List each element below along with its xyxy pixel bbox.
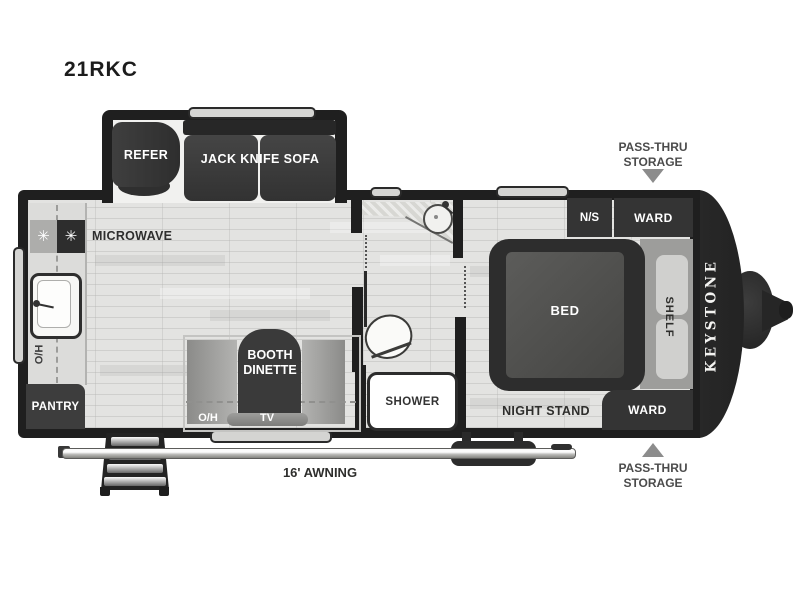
window-top-wall-small xyxy=(370,187,402,198)
brand-logo-text: KEYSTONE xyxy=(704,246,721,386)
floor-plank-shade xyxy=(95,255,225,266)
wardrobe-bottom: WARD xyxy=(602,390,693,430)
cooktop-right: ✳ xyxy=(57,220,85,253)
sofa-label: JACK KNIFE SOFA xyxy=(180,151,340,167)
pass-thru-storage-label-bottom: PASS-THRU STORAGE xyxy=(601,461,705,491)
bed-label: BED xyxy=(530,303,600,318)
entry-steps xyxy=(101,433,169,490)
entry-step xyxy=(104,477,166,486)
sofa-cushion-right xyxy=(260,135,336,201)
bedroom-door-swing xyxy=(464,266,466,308)
step-leg-right xyxy=(159,487,169,496)
window-left-wall xyxy=(13,247,25,364)
pantry-label: PANTRY xyxy=(32,401,80,413)
shelf-label: SHELF xyxy=(661,294,675,340)
dinette-label: BOOTH DINETTE xyxy=(230,346,310,380)
sofa-backrest xyxy=(183,120,336,135)
pass-thru-arrow-up-icon xyxy=(642,443,664,457)
pass-thru-storage-label-top: PASS-THRU STORAGE xyxy=(601,140,705,170)
night-stand-cabinet-label: N/S xyxy=(580,212,599,224)
floorplan-canvas: 21RKC PASS-THRU STORAGE REFER JACK KNIFE… xyxy=(0,0,800,600)
refrigerator: REFER xyxy=(112,122,180,187)
entry-step xyxy=(111,437,159,446)
awning-handle xyxy=(551,444,572,450)
awning-roller-bar xyxy=(62,448,576,459)
shower-label: SHOWER xyxy=(385,396,439,408)
bath-sink-drain xyxy=(434,215,438,219)
step-leg-left xyxy=(100,487,110,496)
wardrobe-bottom-label: WARD xyxy=(628,403,667,417)
awning-length-label: 16' AWNING xyxy=(275,465,365,480)
wardrobe-top-label: WARD xyxy=(634,211,673,225)
kitchen-overhead-label: O/H xyxy=(34,332,47,378)
night-stand-cabinet: N/S xyxy=(567,198,612,237)
cooktop-left: ✳ xyxy=(30,220,57,253)
bath-wall-stub xyxy=(351,198,362,233)
floorplan-model-title: 21RKC xyxy=(64,58,138,82)
sofa-cushion-left xyxy=(184,135,258,201)
burner-icon: ✳ xyxy=(65,229,78,244)
floor-plank-shade xyxy=(100,365,190,376)
floor-plank-shade xyxy=(210,310,330,321)
microwave-label: MICROWAVE xyxy=(92,229,202,243)
pantry: PANTRY xyxy=(26,384,85,429)
night-stand-label: NIGHT STAND xyxy=(490,404,602,418)
hitch-knob xyxy=(779,301,793,319)
bath-door-swing-left xyxy=(365,235,367,268)
pass-thru-arrow-down-icon xyxy=(642,169,664,183)
window-top-wall-bedroom xyxy=(496,186,569,198)
entry-step xyxy=(107,464,163,473)
dinette-overhead-label: O/H xyxy=(193,412,223,424)
refrigerator-label: REFER xyxy=(124,148,168,162)
burner-icon: ✳ xyxy=(37,229,50,244)
bath-wall-right xyxy=(453,198,463,258)
wardrobe-top: WARD xyxy=(614,198,693,237)
shower: SHOWER xyxy=(367,372,458,431)
floor-plank-shade xyxy=(470,266,490,277)
floor-plank-shade xyxy=(380,255,450,266)
tv-label: TV xyxy=(252,412,282,424)
window-slide-out xyxy=(188,107,316,119)
floor-plank-shade xyxy=(160,288,310,299)
